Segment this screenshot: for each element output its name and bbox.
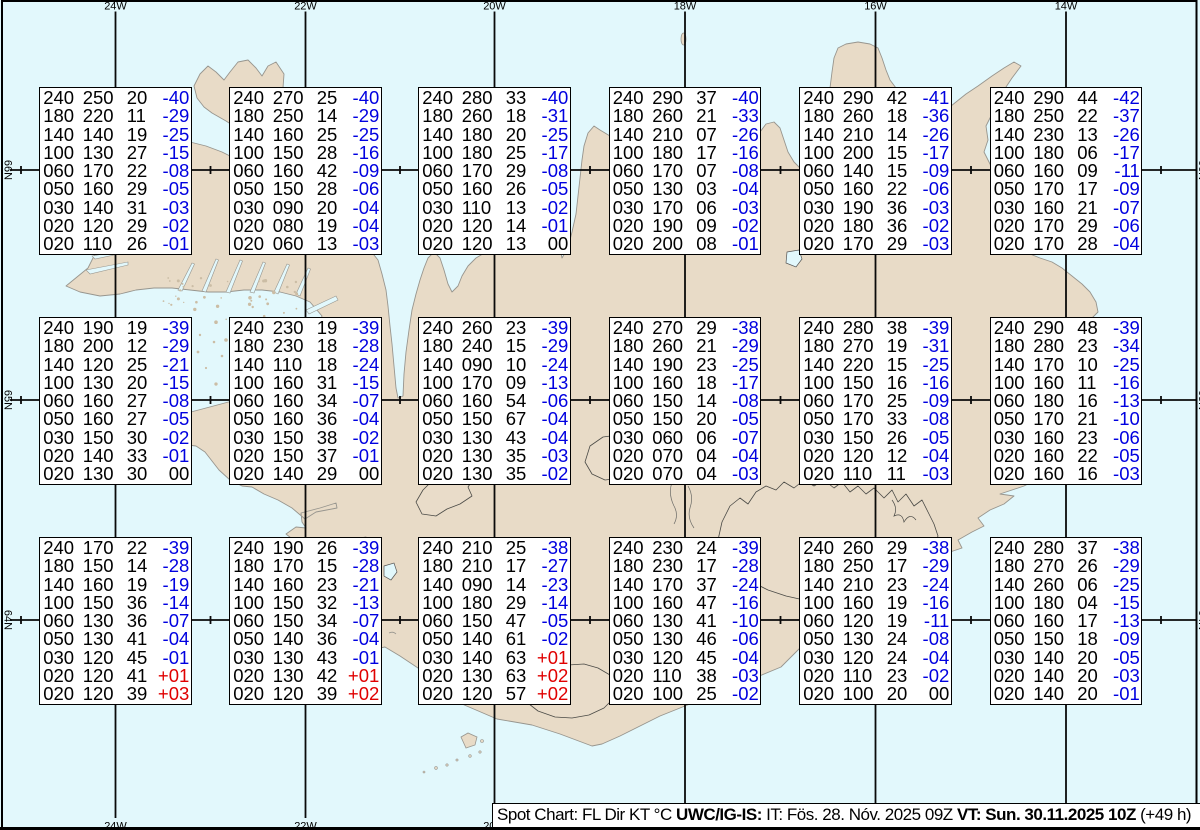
svg-text:64N: 64N [2, 610, 14, 630]
svg-text:20W: 20W [483, 0, 506, 12]
svg-text:16W: 16W [864, 0, 887, 12]
svg-text:66N: 66N [1196, 160, 1200, 180]
svg-text:65N: 65N [2, 390, 14, 410]
svg-text:18W: 18W [674, 0, 697, 12]
svg-text:65N: 65N [1196, 390, 1200, 410]
svg-text:14W: 14W [1055, 0, 1078, 12]
svg-text:66N: 66N [2, 160, 14, 180]
svg-text:22W: 22W [294, 0, 317, 12]
svg-text:64N: 64N [1196, 610, 1200, 630]
svg-text:24W: 24W [104, 0, 127, 12]
